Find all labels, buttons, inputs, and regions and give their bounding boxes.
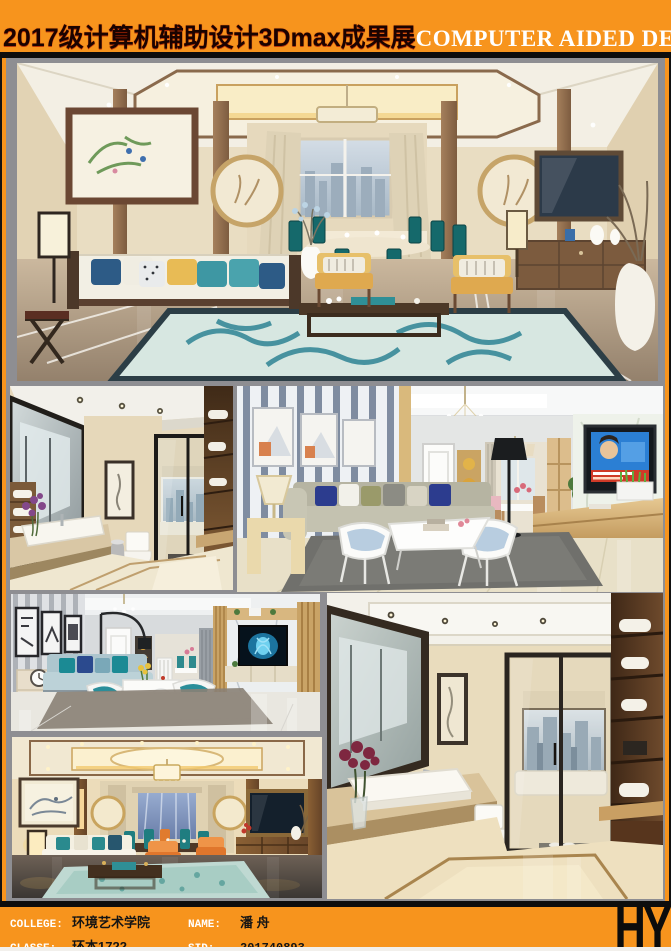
photo-living-room-blue-accent — [11, 594, 320, 731]
photo-living-room-warm-chinese — [12, 737, 322, 898]
board-left-border — [0, 58, 6, 901]
footer-info: COLLEGE: 环境艺术学院 NAME: 潘 舟 CLASSE: 环本1722… — [10, 912, 305, 947]
photo-living-room-modern-striped — [237, 386, 663, 592]
photo-bathroom-marble — [327, 593, 663, 899]
render-living-room-modern-striped — [237, 386, 663, 592]
render-living-room-warm-chinese — [12, 737, 322, 898]
poster-footer: COLLEGE: 环境艺术学院 NAME: 潘 舟 CLASSE: 环本1722… — [0, 907, 671, 947]
render-living-room-new-chinese — [17, 63, 658, 381]
board-right-border — [665, 58, 671, 901]
render-bathroom-marble — [327, 593, 663, 899]
name-label: NAME: — [188, 919, 232, 931]
render-bathroom-wood — [10, 386, 233, 590]
classe-value: 环本1722 — [72, 936, 180, 947]
college-value: 环境艺术学院 — [72, 912, 180, 931]
photo-living-room-new-chinese — [17, 63, 658, 381]
bottom-strip — [0, 947, 671, 951]
poster: 2017级计算机辅助设计3Dmax成果展 COMPUTER AIDED DESI… — [0, 0, 671, 951]
render-living-room-blue-accent — [11, 594, 320, 731]
hy-logo: HY — [614, 907, 669, 947]
college-label: COLLEGE: — [10, 919, 64, 931]
poster-header: 2017级计算机辅助设计3Dmax成果展 COMPUTER AIDED DESI… — [0, 0, 671, 52]
gallery-board — [0, 58, 671, 901]
name-value: 潘 舟 — [240, 912, 305, 931]
poster-title-zh: 2017级计算机辅助设计3Dmax成果展 — [3, 26, 416, 51]
poster-title-en: COMPUTER AIDED DESIGN — [416, 27, 671, 51]
photo-bathroom-wood — [10, 386, 233, 590]
